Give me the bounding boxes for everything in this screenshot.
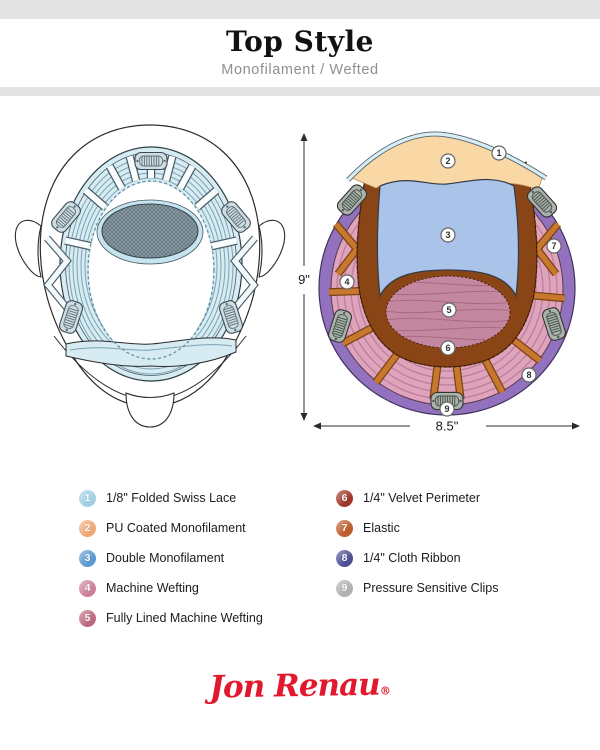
svg-text:4: 4 xyxy=(344,277,349,287)
legend-label-9: Pressure Sensitive Clips xyxy=(363,581,498,595)
legend-label-4: Machine Wefting xyxy=(106,581,199,595)
legend-label-8: 1/4" Cloth Ribbon xyxy=(363,551,461,565)
right-ear-outline xyxy=(259,220,285,277)
svg-text:8: 8 xyxy=(526,370,531,380)
legend-dot-5: 5 xyxy=(79,610,96,627)
svg-text:6: 6 xyxy=(445,343,450,353)
legend-label-7: Elastic xyxy=(363,521,400,535)
svg-text:2: 2 xyxy=(445,156,450,166)
cap-on-head-diagram xyxy=(10,118,290,430)
legend-item-velvet-perimeter: 6 1/4" Velvet Perimeter xyxy=(336,483,498,513)
page-subtitle: Monofilament / Wefted xyxy=(0,62,600,78)
cap-on-head-svg xyxy=(10,118,290,430)
legend-label-3: Double Monofilament xyxy=(106,551,224,565)
legend-label-6: 1/4" Velvet Perimeter xyxy=(363,491,480,505)
registered-trademark-symbol: ® xyxy=(380,684,391,697)
page-title: Top Style xyxy=(0,25,600,58)
svg-text:5: 5 xyxy=(446,305,451,315)
svg-text:1: 1 xyxy=(496,148,501,158)
marker-8: 8 xyxy=(522,368,536,382)
legend-item-double-monofilament: 3 Double Monofilament xyxy=(79,543,263,573)
cap-construction-svg: 1 2 3 4 5 6 7 8 9 9" 8.5" xyxy=(290,128,600,440)
legend-item-pu-monofilament: 2 PU Coated Monofilament xyxy=(79,513,263,543)
legend-label-2: PU Coated Monofilament xyxy=(106,521,246,535)
legend-dot-4: 4 xyxy=(79,580,96,597)
marker-3: 3 xyxy=(441,228,455,242)
marker-7: 7 xyxy=(547,239,561,253)
legend-dot-9: 9 xyxy=(336,580,353,597)
marker-6: 6 xyxy=(441,341,455,355)
left-ear-outline xyxy=(15,220,41,277)
svg-text:9: 9 xyxy=(444,404,449,414)
svg-text:7: 7 xyxy=(551,241,556,251)
legend-item-lined-wefting: 5 Fully Lined Machine Wefting xyxy=(79,603,263,633)
legend-item-swiss-lace: 1 1/8" Folded Swiss Lace xyxy=(79,483,263,513)
cap-construction-diagram: 1 2 3 4 5 6 7 8 9 9" 8.5" xyxy=(290,128,600,440)
legend-item-pressure-clips: 9 Pressure Sensitive Clips xyxy=(336,573,498,603)
marker-4: 4 xyxy=(340,275,354,289)
legend-item-elastic: 7 Elastic xyxy=(336,513,498,543)
legend-item-cloth-ribbon: 8 1/4" Cloth Ribbon xyxy=(336,543,498,573)
legend-dot-1: 1 xyxy=(79,490,96,507)
legend-dot-7: 7 xyxy=(336,520,353,537)
legend-dot-3: 3 xyxy=(79,550,96,567)
marker-9: 9 xyxy=(440,402,454,416)
width-dimension-label: 8.5" xyxy=(436,419,459,434)
brand-logo: Jon Renau® xyxy=(0,663,600,709)
marker-2: 2 xyxy=(441,154,455,168)
header-divider-bar xyxy=(0,87,600,96)
legend-dot-8: 8 xyxy=(336,550,353,567)
marker-1: 1 xyxy=(492,146,506,160)
legend-item-machine-wefting: 4 Machine Wefting xyxy=(79,573,263,603)
neck-outline xyxy=(126,393,174,427)
brand-logo-text: Jon Renau xyxy=(209,667,380,706)
legend-column-left: 1 1/8" Folded Swiss Lace 2 PU Coated Mon… xyxy=(79,483,263,633)
height-dimension-label: 9" xyxy=(298,272,310,287)
clip-top xyxy=(135,153,167,170)
legend-dot-2: 2 xyxy=(79,520,96,537)
legend-dot-6: 6 xyxy=(336,490,353,507)
marker-5: 5 xyxy=(442,303,456,317)
svg-text:3: 3 xyxy=(445,230,450,240)
legend-label-5: Fully Lined Machine Wefting xyxy=(106,611,263,625)
top-divider-bar xyxy=(0,0,600,19)
legend-label-1: 1/8" Folded Swiss Lace xyxy=(106,491,236,505)
monofilament-mesh-oval xyxy=(102,204,198,258)
legend-column-right: 6 1/4" Velvet Perimeter 7 Elastic 8 1/4"… xyxy=(336,483,498,603)
